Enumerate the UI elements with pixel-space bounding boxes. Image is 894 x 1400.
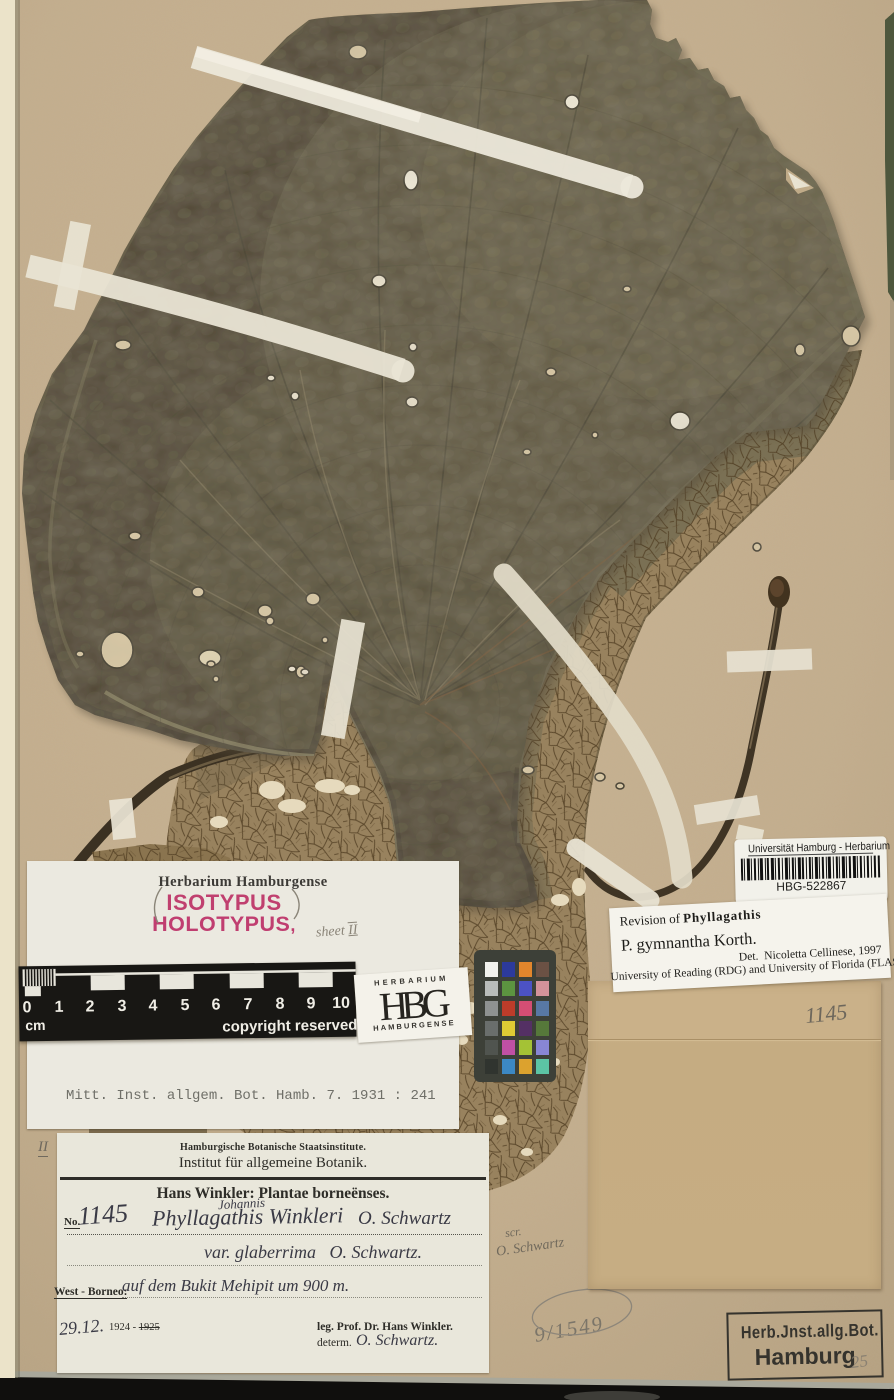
svg-text:6: 6 xyxy=(211,997,220,1014)
svg-text:0: 0 xyxy=(22,999,31,1016)
svg-text:4: 4 xyxy=(148,997,157,1014)
svg-text:10: 10 xyxy=(332,995,350,1012)
svg-text:8: 8 xyxy=(275,996,284,1013)
svg-text:5: 5 xyxy=(180,997,189,1014)
svg-text:cm: cm xyxy=(25,1017,45,1033)
svg-text:copyright reserved: copyright reserved xyxy=(222,1017,357,1036)
svg-text:7: 7 xyxy=(243,996,252,1013)
svg-text:2: 2 xyxy=(85,998,94,1015)
svg-text:9: 9 xyxy=(306,995,315,1012)
svg-text:3: 3 xyxy=(117,998,126,1015)
svg-text:1: 1 xyxy=(54,999,63,1016)
